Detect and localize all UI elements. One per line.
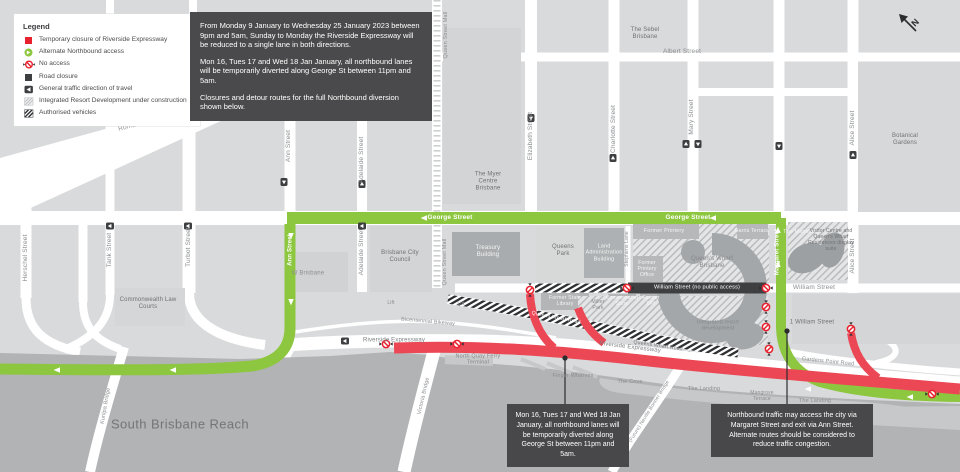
label-mary-street: Mary Street [688,99,696,134]
label-commonwealth-law-courts: Commonwealth Law Courts [115,297,181,311]
label-brisbane-city-council: Brisbane City Council [377,250,423,264]
label-sebel-brisbane: The Sebel Brisbane [625,27,665,41]
label-william-street-east: William Street [793,284,835,292]
legend-item-no-access: No access [23,60,191,69]
label-george-street-east: George Street [666,214,711,222]
notice-paragraph-2: Mon 16, Tues 17 and Wed 18 Jan January, … [200,57,422,86]
legend-item-direction: General traffic direction of travel [23,85,191,94]
label-lift-2: Lift [457,302,464,308]
label-queens-wharf-brisbane: Queen's Wharf Brisbane [690,256,734,270]
legend-item-label: Authorised vehicles [39,109,96,117]
label-ann-street-detour: Ann Street [287,234,294,266]
label-queen-street-mall-north: Queen Street Mall [443,12,449,59]
label-adelaide-street-south: Adelaide Street [358,229,366,276]
label-mangrove-terrace: Mangrove Terrace [745,391,779,403]
legend-item-label: No access [39,60,70,68]
label-myer-centre: The Myer Centre Brisbane [468,171,508,192]
label-the-landing-west: The Landing [688,386,720,392]
legend-item-label: Alternate Northbound access [39,48,124,56]
label-tank-street: Tank Street [106,233,114,268]
label-ann-street-north: Ann Street [285,130,293,162]
hatched-road-icon [23,109,35,118]
legend-item-resort-development: Integrated Resort Development under cons… [23,97,191,106]
no-access-icon [23,60,35,69]
label-william-street-closed: William Street (no public access) [654,285,740,292]
legend-item-closure: Temporary closure of Riverside Expresswa… [23,36,191,45]
label-queen-street-mall-south: Queen Street Mall [442,239,448,286]
label-treasury-building: Treasury Building [468,245,508,259]
legend-item-label: Road closure [39,73,78,81]
legend-title: Legend [23,22,191,31]
label-w-brisbane: W Brisbane [292,270,325,277]
label-albert-street: Albert Street [663,48,701,56]
label-botanical-gardens: Botanical Gardens [883,133,927,147]
notice-paragraph-1: From Monday 9 January to Wednesday 25 Ja… [200,21,422,50]
label-alice-street-north: Alice Street [849,110,857,145]
legend-item-label: Integrated Resort Development under cons… [39,97,187,105]
label-turbot-street: Turbot Street [185,227,193,267]
dark-square-icon [23,73,35,82]
label-former-printery-office: Former Printery Office [631,260,663,278]
label-former-dpi: Former DPI [638,296,664,308]
legend-item-authorised-vehicles: Authorised vehicles [23,109,191,118]
label-finger-wharves: Finger Wharves [553,373,594,379]
label-herschel-street: Herschel Street [22,234,30,281]
label-north-quay-ferry-terminal: North Quay Ferry Terminal [454,354,502,367]
label-visitor-centre: Visitor Centre and Queen's Wharf Residen… [804,229,858,253]
label-commissariat-store: Commissariat Store [602,296,642,308]
legend-item-alternate-access: Alternate Northbound access [23,48,191,57]
direction-arrow-icon [23,85,35,94]
legend-item-label: General traffic direction of travel [39,85,132,93]
label-land-administration: Land Administration Building [581,243,627,262]
legend-panel: Legend Temporary closure of Riverside Ex… [14,14,200,126]
label-former-printery: Former Printery [644,228,684,234]
label-former-state-library: Former State Library [546,295,584,307]
label-integrated-resort: Integrated resort development [690,320,746,333]
george-street-callout: Mon 16, Tues 17 and Wed 18 Jan January, … [507,404,629,467]
label-margaret-street-detour: Margaret Street [774,229,781,275]
label-george-street-west: George Street [428,214,473,222]
label-elizabeth-street: Elizabeth Street [527,112,535,160]
label-south-brisbane-reach: South Brisbane Reach [111,416,249,431]
legend-item-label: Temporary closure of Riverside Expresswa… [39,36,167,44]
notice-paragraph-3: Closures and detour routes for the full … [200,93,422,112]
label-charlotte-street: Charlotte Street [610,105,618,153]
label-adelaide-street-north: Adelaide Street [358,137,366,184]
red-square-icon [23,36,35,45]
label-one-william-street: 1 William Street [790,319,834,326]
label-the-cove: The Cove [617,379,642,385]
hatched-area-icon [23,97,35,106]
label-queens-park: Queens Park [546,244,580,258]
label-riverside-expressway-west: Riverside Expressway [363,337,425,344]
label-harris-terrace: Harris Terrace [735,228,770,234]
legend-item-road-closure: Road closure [23,73,191,82]
margaret-street-callout: Northbound traffic may access the city v… [711,404,873,457]
label-lift-1: Lift [387,301,394,307]
road-closure-map: N Roma Street Herschel Street Tank Stree… [0,0,960,472]
green-access-icon [23,48,35,57]
notice-panel: From Monday 9 January to Wednesday 25 Ja… [190,12,432,121]
